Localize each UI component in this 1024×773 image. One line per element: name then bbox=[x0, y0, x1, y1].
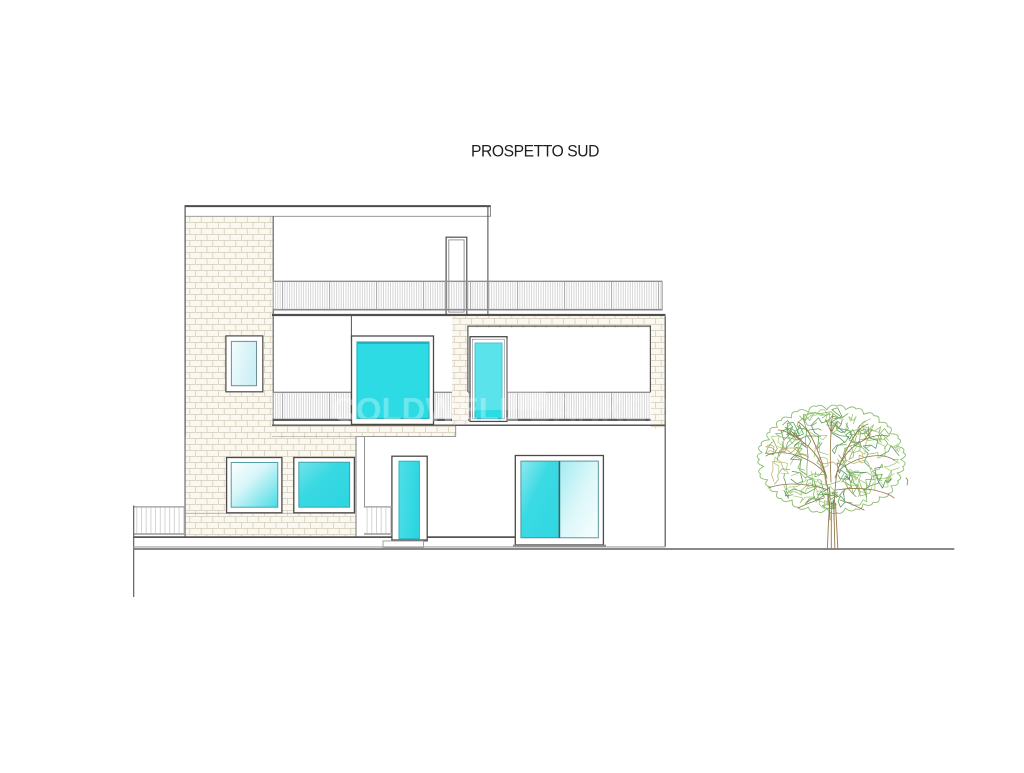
svg-text:COLDWELL: COLDWELL bbox=[332, 391, 519, 428]
svg-text:PROSPETTO SUD: PROSPETTO SUD bbox=[471, 142, 599, 161]
svg-text:BANKER: BANKER bbox=[529, 391, 670, 428]
